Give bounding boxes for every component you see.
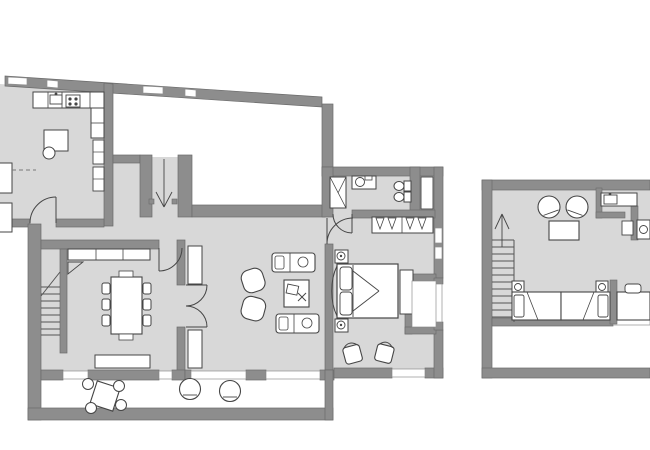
window-top-2 xyxy=(47,80,58,88)
wall-bottom-3 xyxy=(172,370,185,380)
wall-courtyard-right xyxy=(322,104,333,176)
upper-tub-chair-a xyxy=(538,196,560,218)
wall-outer-right-lower xyxy=(434,330,443,378)
dining-table xyxy=(111,277,142,334)
kitchen-sink xyxy=(50,95,62,104)
dining-low-sideboard xyxy=(95,355,150,368)
dining-chair xyxy=(143,299,151,310)
window-top-4 xyxy=(185,89,196,97)
bed-pillow-b xyxy=(340,292,352,315)
dining-chair xyxy=(143,315,151,326)
wall-bottom-1 xyxy=(41,370,63,380)
upper-lamp-b xyxy=(599,284,606,291)
window-bottom-4 xyxy=(266,371,320,379)
table-centerpiece-a xyxy=(119,271,133,277)
toilet-bowl xyxy=(394,182,404,191)
wall-dining-right-a xyxy=(177,240,185,285)
dining-sideboard xyxy=(68,249,150,260)
window-bottom-2 xyxy=(159,371,172,379)
wall-living-bedroom xyxy=(325,244,333,370)
wall-outer-left xyxy=(28,224,41,420)
upper-bed-c xyxy=(617,292,650,320)
dining-chair xyxy=(102,283,110,294)
dining-chair xyxy=(143,283,151,294)
wall-bottom-2 xyxy=(88,370,159,380)
wall-entry-right xyxy=(178,155,192,217)
upper-lamp-a xyxy=(515,284,522,291)
stove-burner xyxy=(74,97,77,100)
sink-faucet xyxy=(55,93,58,96)
floor-entry xyxy=(152,157,178,219)
table-centerpiece-b xyxy=(119,334,133,340)
terrace-chair xyxy=(86,403,97,414)
chaise-pillow xyxy=(279,317,288,330)
window-bottom-5 xyxy=(392,369,425,377)
bed-pillow-a xyxy=(340,267,352,290)
floor-plan-drawing xyxy=(0,0,650,450)
terrace-chair xyxy=(83,379,94,390)
entry-jamb-left xyxy=(149,199,154,204)
kitchen-stove xyxy=(66,95,80,107)
dining-chair xyxy=(102,299,110,310)
wall-bottom-7 xyxy=(334,368,392,378)
upper-bed-a-pillow xyxy=(514,295,524,317)
lamp-a-dot xyxy=(340,255,342,257)
window-top-1 xyxy=(8,77,27,85)
wall-terrace-right xyxy=(325,370,333,420)
utility-niche xyxy=(421,177,433,209)
wardrobe-left-edge-b xyxy=(0,203,12,232)
wall-stairwell xyxy=(60,249,67,353)
wall-kitchen-right xyxy=(104,83,113,226)
bidet-tank xyxy=(404,192,411,202)
stove-burner xyxy=(68,97,71,100)
entry-jamb-right xyxy=(172,199,177,204)
wall-vestibule-top xyxy=(113,155,140,163)
bed-foot-bench xyxy=(400,270,413,314)
window-bedroom-right-1 xyxy=(435,228,442,243)
wall-dining-right-b xyxy=(177,327,185,373)
terrace-armchair-b xyxy=(220,381,241,402)
living-cabinet-a xyxy=(188,246,202,284)
wall-bottom-5 xyxy=(246,370,266,380)
wall-bath-top xyxy=(322,167,443,176)
wall-outer-right-upper xyxy=(434,167,443,278)
upper-sink-faucet xyxy=(609,193,612,196)
wall-terrace-bottom xyxy=(28,408,333,420)
wall-hall-dining xyxy=(41,240,159,249)
chaise-cushion xyxy=(298,257,308,267)
upper-wall-left xyxy=(482,180,492,378)
laptop-on-table xyxy=(286,284,299,295)
terrace-chair xyxy=(116,400,127,411)
kitchen-chair xyxy=(43,147,55,159)
stove-burner xyxy=(68,102,71,105)
window-top-3 xyxy=(143,86,163,94)
upper-wall-bottom xyxy=(482,368,650,378)
terrace-armchair-a xyxy=(180,379,201,400)
upper-tub-chair-b xyxy=(566,196,588,218)
living-cabinet-b xyxy=(188,330,202,368)
upper-wall-top xyxy=(482,180,650,190)
terrace-chair xyxy=(114,381,125,392)
chaise-cushion xyxy=(302,318,312,328)
wall-balcony-bottom xyxy=(405,327,436,334)
wall-leftroom-bottom-b xyxy=(56,219,104,227)
window-bottom-3 xyxy=(191,371,246,379)
toilet-tank xyxy=(404,181,411,191)
window-bedroom-right-2 xyxy=(435,247,442,259)
upper-side-table xyxy=(549,221,579,240)
wall-hallway-top xyxy=(192,205,325,217)
lamp-b-dot xyxy=(340,324,342,326)
window-bottom-1 xyxy=(63,371,88,379)
upper-sink-basin xyxy=(604,195,617,204)
bath-sink-basin xyxy=(356,178,365,187)
wardrobe-left-edge-a xyxy=(0,163,12,193)
chaise-pillow xyxy=(275,256,284,269)
upper-bed-divider xyxy=(610,280,617,324)
wall-entry-left xyxy=(140,155,152,217)
balcony-floor xyxy=(412,281,436,327)
upper-bed-b-pillow xyxy=(598,295,608,317)
upper-bath-stub-b xyxy=(596,212,625,218)
bedroom-chair-a xyxy=(342,344,363,365)
bidet-bowl xyxy=(394,193,404,202)
upper-shower-tray xyxy=(622,221,633,235)
dining-chair xyxy=(102,315,110,326)
stove-burner xyxy=(74,102,77,105)
upper-washer-door xyxy=(640,226,648,234)
floor-plan-page xyxy=(0,0,650,450)
bath-sink-tap xyxy=(365,176,372,180)
upper-bed-c-pillow xyxy=(625,284,641,293)
